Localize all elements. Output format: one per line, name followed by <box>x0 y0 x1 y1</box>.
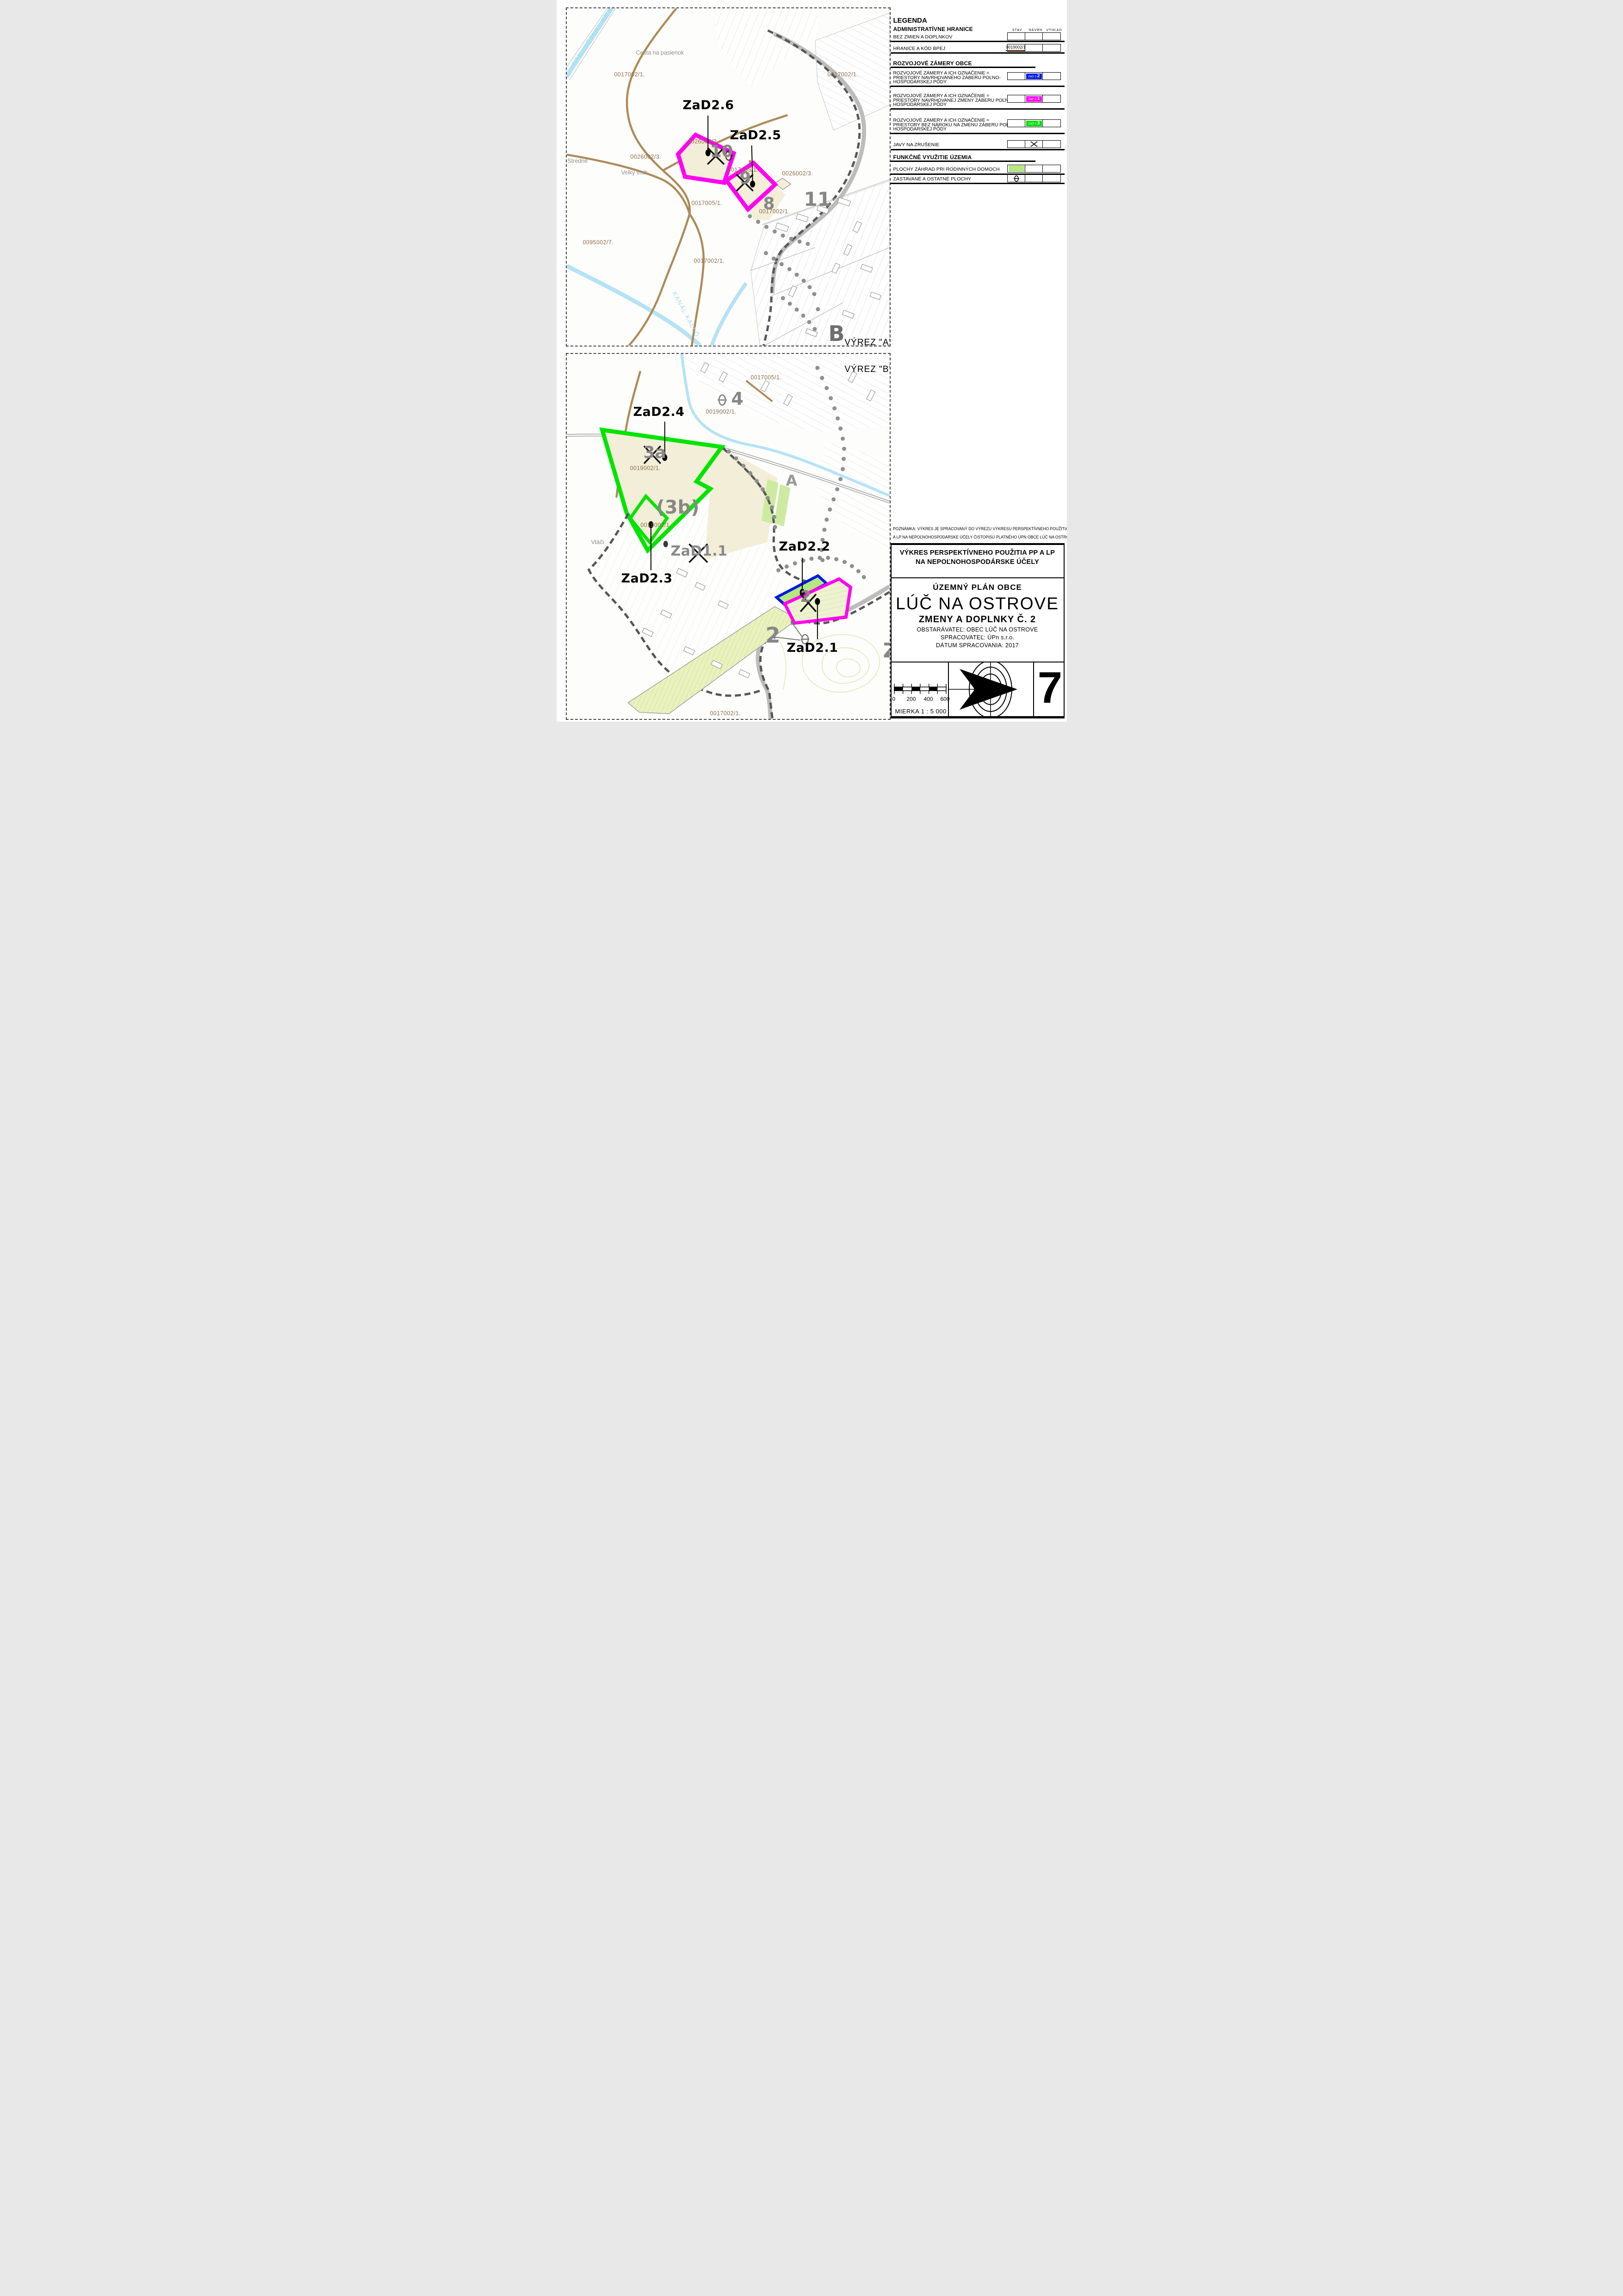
zone-number-3a: 3a <box>644 445 666 461</box>
cell-vyhlad <box>1042 119 1061 127</box>
change-label-zad24: ZaD2.4 <box>633 406 685 418</box>
drawing-title-line1: VÝKRES PERSPEKTÍVNEHO POUŽITIA PP A LP <box>892 549 1064 557</box>
cell-navrh <box>1025 174 1043 182</box>
water-channel-vojka <box>567 8 615 80</box>
change-label-zad23: ZaD2.3 <box>621 572 673 585</box>
cell-vyhlad <box>1042 165 1061 173</box>
cell-navrh: ZaD 2.2 <box>1025 72 1043 80</box>
separator <box>891 41 1065 42</box>
cell-vyhlad <box>1042 32 1061 40</box>
separator <box>891 149 1065 150</box>
place-label: Vtáči <box>591 539 604 545</box>
zone-number-10: 10 <box>710 143 733 160</box>
plan-type: ÚZEMNÝ PLÁN OBCE <box>892 583 1064 592</box>
zone-number-4: 4 <box>731 390 743 408</box>
legend-cells <box>1008 32 1061 40</box>
cell-stav <box>1007 174 1026 182</box>
scale-label: MIERKA 1 : 5 000 <box>895 708 947 715</box>
separator <box>891 52 1065 54</box>
legend-row-javy: JAVY NA ZRUŠENIE <box>893 142 940 148</box>
cell-stav <box>1007 119 1026 127</box>
legend-cells: ZaD 2.2 <box>1008 72 1061 80</box>
parcel-label: 0017002/1. <box>710 711 741 717</box>
change-label-zad21: ZaD2.1 <box>787 642 838 654</box>
legend-row-plochy-zahrad: PLOCHY ZÁHRAD PRI RODINNÝCH DOMOCH <box>893 167 1000 172</box>
change-label-zad22: ZaD2.2 <box>779 540 830 553</box>
bpej-code: 0019002/1. <box>1006 45 1027 51</box>
zone-number-crossed: 2 <box>800 589 811 605</box>
cell-navrh <box>1025 140 1043 148</box>
old-change-label-zad11: ZaD1.1 <box>671 545 728 558</box>
note-line-1: POZNÁMKA: VÝKRES JE SPRACOVANÝ DO VÝREZU… <box>893 526 1067 532</box>
scale-tick-400: 400 <box>924 696 933 702</box>
zone-number-11: 11 <box>804 190 831 209</box>
parcel-label: 0026002/3. <box>631 154 662 160</box>
north-arrow-icon <box>948 662 1033 717</box>
cell-stav <box>1007 95 1026 103</box>
map-view-b: VÝREZ "B" 0017005/1. 4 0019002/1. ZaD2.4… <box>566 353 891 720</box>
cell-vyhlad <box>1042 44 1061 52</box>
cell-vyhlad <box>1042 72 1061 80</box>
drawing-title-box: VÝKRES PERSPEKTÍVNEHO POUŽITIA PP A LP N… <box>891 543 1065 578</box>
drawing-title-line2: NA NEPOĽNOHOSPODÁRSKE ÚČELY <box>892 558 1064 566</box>
municipality-name: LÚČ NA OSTROVE <box>892 594 1064 613</box>
cell-navrh <box>1025 44 1043 52</box>
cell-stav <box>1007 72 1026 80</box>
place-label: Stredné <box>568 158 588 164</box>
col-stav: STAV <box>1008 29 1027 32</box>
legend-section-rozvoj: ROZVOJOVÉ ZÁMERY OBCE <box>893 60 972 67</box>
x-cross-icon <box>1029 141 1039 147</box>
legend-row-rozvoj3: ROZVOJOVÉ ZÁMERY A ICH OZNAČENIE = PRIES… <box>893 118 1018 132</box>
sheet-sidebar: LEGENDA ADMINISTRATÍVNE HRANICE STAV NÁV… <box>891 0 1065 722</box>
amendment-title: ZMENY A DOPLNKY Č. 2 <box>892 614 1064 625</box>
zone-number-9: 9 <box>740 170 751 187</box>
legend-title: LEGENDA <box>893 17 927 25</box>
view-a-caption: VÝREZ "A" <box>845 338 891 347</box>
legend-column-headers: STAV NÁVRH VÝHĽAD <box>1008 29 1065 32</box>
legend-row-zastavane: ZASTAVANÉ A OSTATNÉ PLOCHY <box>893 176 972 182</box>
water-channel-kallo <box>567 266 746 346</box>
cell-vyhlad <box>1042 174 1061 182</box>
map-view-a: Cesta na pasienok 0017002/1. 0017002/1. … <box>566 7 891 347</box>
zone-number-3b: (3b) <box>657 498 700 517</box>
map-a-graphics <box>567 8 890 346</box>
parcel-label: 0017002/1. <box>694 258 725 264</box>
sector-letter-z: Z <box>883 641 891 661</box>
cell-stav: 0019002/1. <box>1007 44 1026 52</box>
parcel-label: 0019002/1. <box>641 522 672 528</box>
separator <box>891 183 1065 184</box>
parcel-label: 0026002/3. <box>782 171 813 177</box>
legend-section-funkcne: FUNKČNÉ VYUŽITIE ÚZEMIA <box>893 154 972 161</box>
legend-row-hranice: HRANICE A KÓD BPEJ <box>893 46 946 51</box>
change-label-zad25: ZaD2.5 <box>730 129 781 142</box>
view-b-caption: VÝREZ "B" <box>845 365 891 374</box>
separator <box>891 86 1065 87</box>
sheet-number: 7 <box>1035 661 1065 717</box>
cell-vyhlad <box>1042 95 1061 103</box>
parcel-label: 0017002/1. <box>759 209 790 215</box>
col-vyhlad: VÝHĽAD <box>1045 29 1064 32</box>
plan-sheet: Cesta na pasienok 0017002/1. 0017002/1. … <box>557 0 1067 722</box>
swatch-zad2-1: ZaD 2.1 <box>1026 96 1042 102</box>
parcel-label: 0017005/1. <box>692 200 723 206</box>
parcel-label: 0019002/1. <box>706 409 737 415</box>
legend-cells: 0019002/1. <box>1008 44 1061 52</box>
parcel-label: 0017005/1. <box>751 375 782 381</box>
cell-navrh: ZaD 2.1 <box>1025 95 1043 103</box>
garden-green-swatch <box>1009 166 1024 172</box>
client-line: OBSTARÁVATEĽ: OBEC LÚČ NA OSTROVE <box>892 626 1064 633</box>
legend-cells <box>1008 165 1061 173</box>
separator <box>891 133 1065 134</box>
legend-cells <box>1008 174 1061 182</box>
parcel-label: 0017002/1. <box>828 72 859 78</box>
divider <box>1033 662 1034 716</box>
note-line-2: A LP NA NEPOĽNOHOSPODÁRSKE ÚČELY ČISTOPI… <box>893 535 1067 540</box>
legend-section-admin: ADMINISTRATÍVNE HRANICE <box>893 26 973 32</box>
heading-underline <box>891 161 1035 162</box>
scale-tick-0: 0 <box>892 696 896 702</box>
swatch-zad2-3: ZaD 2.3 <box>1026 121 1042 126</box>
swatch-zad2-2: ZaD 2.2 <box>1026 74 1042 79</box>
legend-row-rozvoj2: ROZVOJOVÉ ZÁMERY A ICH OZNAČENIE = PRIES… <box>893 94 1014 107</box>
sector-letter-b: B <box>829 323 845 344</box>
plan-title-box: ÚZEMNÝ PLÁN OBCE LÚČ NA OSTROVE ZMENY A … <box>891 578 1065 662</box>
scale-bar <box>892 662 948 706</box>
date-line: DÁTUM SPRACOVANIA: 2017 <box>892 642 1064 649</box>
legend-cells <box>1008 140 1061 148</box>
footer-box: 0 200 400 600 MIERKA 1 : 5 000 7 <box>891 662 1065 718</box>
legend-row-rozvoj1: ROZVOJOVÉ ZÁMERY A ICH OZNAČENIE = PRIES… <box>893 71 1001 85</box>
cell-stav <box>1007 165 1026 173</box>
col-navrh: NÁVRH <box>1027 29 1045 32</box>
heading-underline <box>891 67 1035 68</box>
cell-vyhlad <box>1042 140 1061 148</box>
legend-row-bez-zmien: BEZ ZMIEN A DOPLNKOV <box>893 34 953 40</box>
cell-navrh <box>1025 32 1043 40</box>
separator <box>891 108 1065 110</box>
legend-cells: ZaD 2.3 <box>1008 119 1061 127</box>
author-line: SPRACOVATEĽ: ÚPn s.r.o. <box>892 634 1064 641</box>
place-label: Velký vrch <box>621 170 648 176</box>
sector-letter-a: A <box>786 473 798 488</box>
parcel-label: 0017002/1. <box>614 72 645 78</box>
parcel-field <box>817 441 889 552</box>
zone-number-2: 2 <box>766 625 781 646</box>
change-label-zad26: ZaD2.6 <box>683 99 734 111</box>
cell-stav <box>1007 140 1026 148</box>
place-label: Cesta na pasienok <box>636 50 684 56</box>
cell-stav <box>1007 32 1026 40</box>
parcel-label: 0095002/7. <box>583 240 614 246</box>
scale-tick-200: 200 <box>907 696 916 702</box>
built-area-icon <box>1013 175 1020 182</box>
cell-navrh: ZaD 2.3 <box>1025 119 1043 127</box>
cell-navrh <box>1025 165 1043 173</box>
parcel-label: 0019002/1. <box>630 465 661 471</box>
legend-cells: ZaD 2.1 <box>1008 95 1061 103</box>
